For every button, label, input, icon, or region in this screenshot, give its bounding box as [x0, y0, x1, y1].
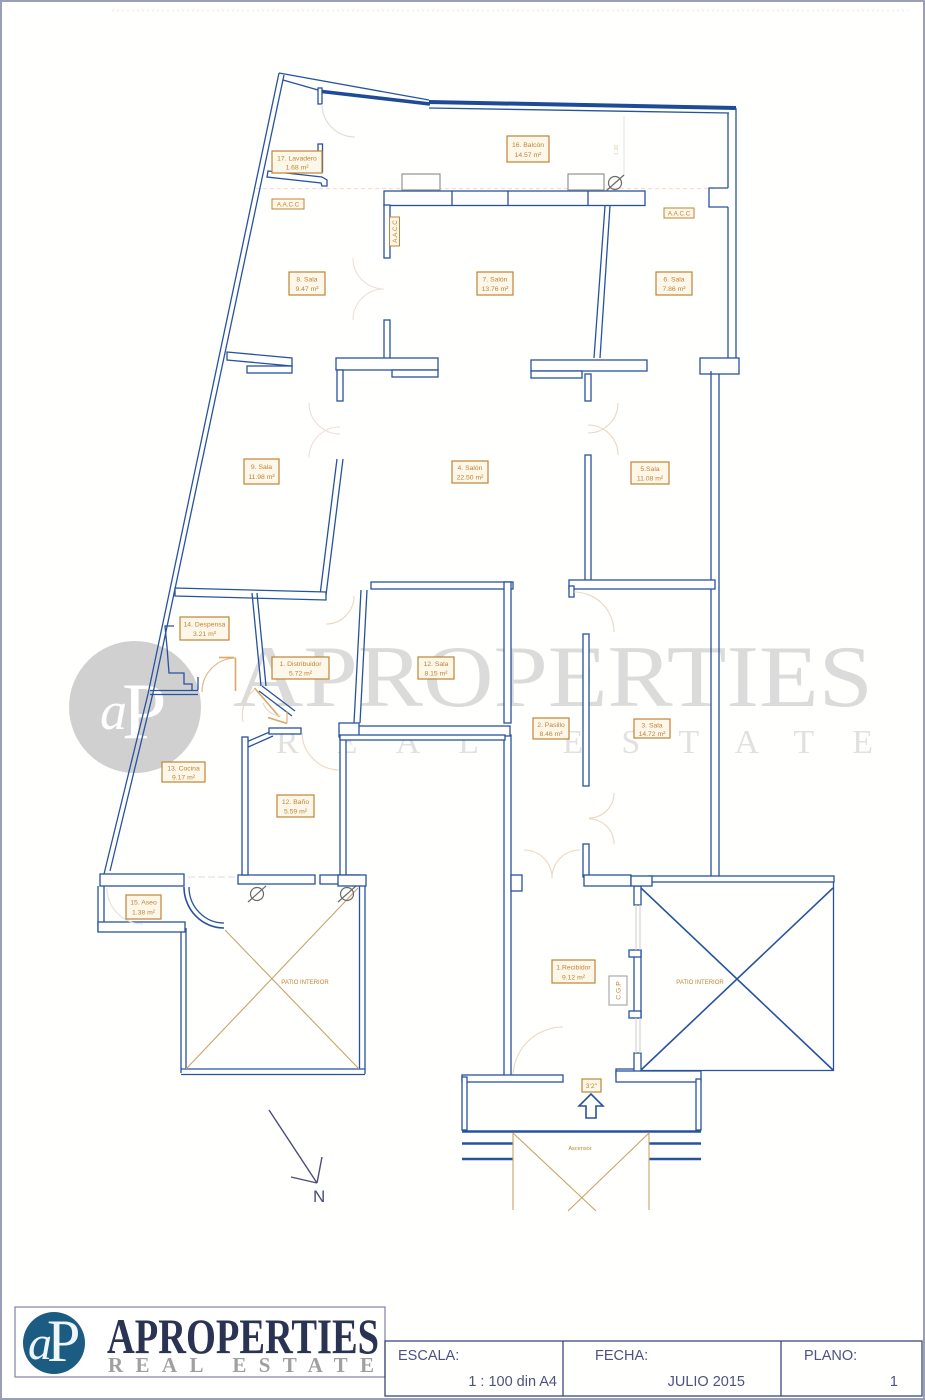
svg-text:5.59 m²: 5.59 m² [284, 809, 308, 816]
svg-text:1.Recibidor: 1.Recibidor [556, 965, 591, 972]
svg-text:P: P [47, 1308, 80, 1374]
svg-text:9. Sala: 9. Sala [251, 464, 272, 471]
svg-text:1: 1 [890, 1374, 898, 1390]
svg-text:PATIO INTERIOR: PATIO INTERIOR [676, 980, 724, 986]
svg-text:FECHA:: FECHA: [595, 1348, 648, 1364]
svg-text:3'2'': 3'2'' [586, 1083, 597, 1090]
svg-text:1.38 m²: 1.38 m² [132, 910, 156, 917]
svg-text:C.G.P: C.G.P [616, 981, 623, 1000]
svg-text:12. Sala: 12. Sala [424, 661, 449, 668]
svg-text:6. Sala: 6. Sala [663, 277, 684, 284]
svg-text:15. Aseo: 15. Aseo [130, 900, 157, 907]
svg-text:14.57 m²: 14.57 m² [515, 152, 543, 159]
svg-text:ESCALA:: ESCALA: [398, 1348, 459, 1364]
svg-text:17. Lavadero: 17. Lavadero [277, 156, 317, 163]
svg-text:A.A.C.C: A.A.C.C [392, 220, 399, 243]
svg-text:3.21 m²: 3.21 m² [193, 631, 217, 638]
svg-text:14. Despensa: 14. Despensa [184, 622, 226, 629]
svg-text:N: N [313, 1187, 325, 1206]
svg-text:JULIO 2015: JULIO 2015 [668, 1374, 745, 1390]
svg-text:14.72 m²: 14.72 m² [639, 731, 667, 738]
svg-text:13. Cocina: 13. Cocina [167, 766, 200, 773]
svg-text:9.17 m²: 9.17 m² [172, 775, 196, 782]
svg-text:1.20: 1.20 [614, 145, 620, 156]
svg-text:9.12 m²: 9.12 m² [562, 975, 586, 982]
svg-text:REAL ESTATE: REAL ESTATE [108, 1353, 374, 1377]
svg-text:A.A.C.C: A.A.C.C [277, 202, 300, 209]
svg-text:1. Distribuidor: 1. Distribuidor [280, 661, 323, 668]
svg-text:4. Salón: 4. Salón [458, 465, 483, 472]
svg-text:3. Sala: 3. Sala [641, 723, 662, 730]
svg-text:11.08 m²: 11.08 m² [637, 476, 664, 483]
svg-text:11.98 m²: 11.98 m² [248, 474, 275, 481]
svg-text:7.86 m²: 7.86 m² [662, 286, 686, 293]
svg-text:5.Sala: 5.Sala [640, 466, 659, 473]
svg-text:13.76 m²: 13.76 m² [482, 286, 510, 293]
svg-text:22.50 m²: 22.50 m² [457, 475, 485, 482]
svg-text:A.A.C.C: A.A.C.C [668, 211, 691, 218]
svg-text:8.46 m²: 8.46 m² [539, 731, 563, 738]
svg-text:1 : 100 din A4: 1 : 100 din A4 [468, 1374, 557, 1390]
svg-text:2. Pasillo: 2. Pasillo [537, 722, 565, 729]
svg-text:8.15 m²: 8.15 m² [424, 671, 448, 678]
svg-text:7. Salón: 7. Salón [483, 277, 508, 284]
svg-text:Ascensor: Ascensor [568, 1146, 591, 1152]
svg-text:5.72 m²: 5.72 m² [289, 671, 313, 678]
svg-text:16. Balcón: 16. Balcón [512, 142, 544, 149]
svg-text:1.68 m²: 1.68 m² [285, 165, 309, 172]
svg-text:9.47 m²: 9.47 m² [295, 286, 319, 293]
svg-text:12. Baño: 12. Baño [282, 799, 309, 806]
svg-text:PLANO:: PLANO: [804, 1348, 857, 1364]
svg-text:8. Sala: 8. Sala [296, 277, 317, 284]
svg-text:PATIO INTERIOR: PATIO INTERIOR [281, 980, 329, 986]
